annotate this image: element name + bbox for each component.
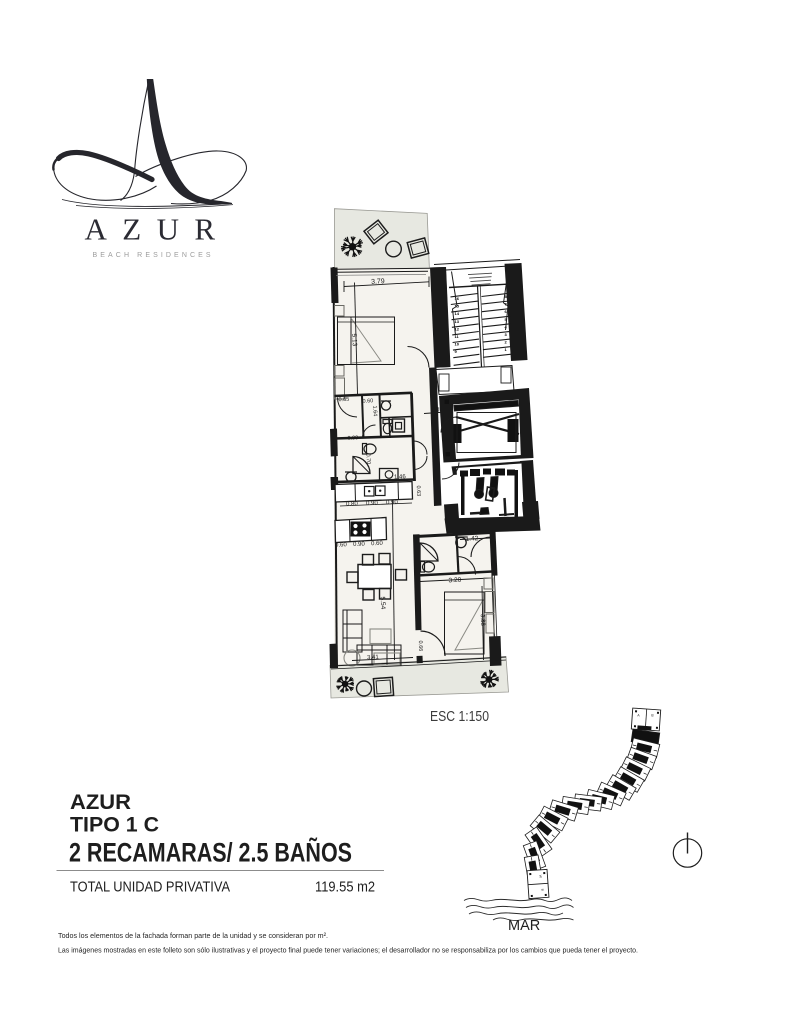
svg-text:Todos los elementos de la fach: Todos los elementos de la fachada forman… <box>58 931 328 940</box>
svg-text:MAR: MAR <box>508 918 540 934</box>
svg-text:1.42: 1.42 <box>465 535 478 543</box>
svg-text:TIPO 1 C: TIPO 1 C <box>70 813 159 837</box>
svg-text:ESC 1:150: ESC 1:150 <box>430 709 489 725</box>
svg-text:0.90: 0.90 <box>366 501 379 507</box>
svg-text:3.88: 3.88 <box>479 614 485 627</box>
svg-text:AZUR: AZUR <box>85 212 231 247</box>
svg-text:5.13: 5.13 <box>350 333 358 346</box>
svg-text:W: W <box>538 875 542 878</box>
svg-text:0.60: 0.60 <box>371 541 384 547</box>
svg-text:TOTAL UNIDAD PRIVATIVA: TOTAL UNIDAD PRIVATIVA <box>70 879 230 896</box>
svg-text:13: 13 <box>455 319 460 324</box>
svg-text:3.41: 3.41 <box>367 655 380 662</box>
svg-text:0.60: 0.60 <box>335 542 348 548</box>
svg-text:BEACH RESIDENCES: BEACH RESIDENCES <box>93 252 214 259</box>
svg-text:3.20: 3.20 <box>448 577 461 585</box>
svg-text:0.63: 0.63 <box>415 485 422 496</box>
svg-text:0.66: 0.66 <box>417 641 423 652</box>
svg-text:10: 10 <box>455 342 460 347</box>
svg-text:0.60: 0.60 <box>362 398 373 405</box>
svg-text:0.90: 0.90 <box>347 435 358 442</box>
svg-text:5.54: 5.54 <box>379 596 387 609</box>
svg-text:1.64: 1.64 <box>371 405 378 416</box>
svg-text:2 RECAMARAS/ 2.5 BAÑOS: 2 RECAMARAS/ 2.5 BAÑOS <box>69 838 352 868</box>
svg-text:119.55 m2: 119.55 m2 <box>315 879 375 896</box>
svg-text:0.70: 0.70 <box>365 453 372 464</box>
svg-text:AZUR: AZUR <box>70 790 131 814</box>
svg-text:1.46: 1.46 <box>394 474 407 481</box>
svg-text:0.80: 0.80 <box>346 501 359 507</box>
svg-text:14: 14 <box>455 311 460 316</box>
svg-text:Las imágenes mostradas en este: Las imágenes mostradas en este folleto s… <box>58 946 638 955</box>
svg-text:3.79: 3.79 <box>371 278 385 286</box>
svg-text:0.85: 0.85 <box>338 397 349 404</box>
svg-text:B: B <box>540 889 544 891</box>
svg-text:0.90: 0.90 <box>353 542 366 548</box>
